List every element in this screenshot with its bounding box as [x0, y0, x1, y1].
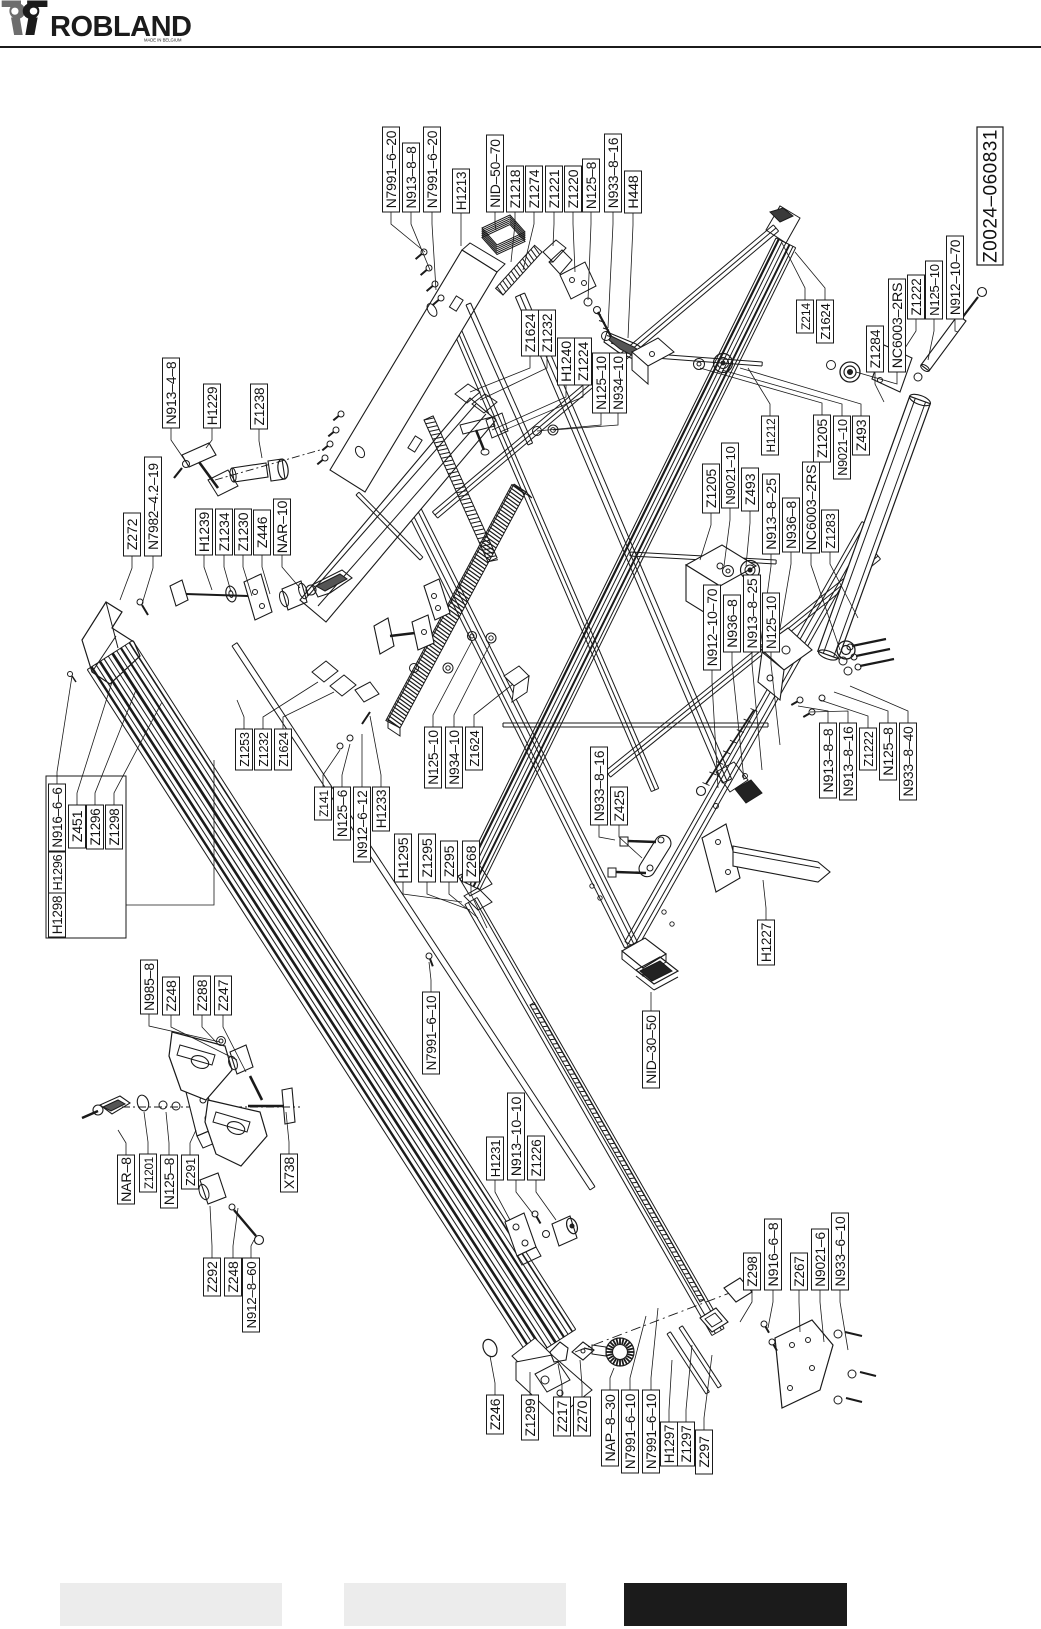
svg-text:N912–8–60: N912–8–60	[244, 1262, 259, 1329]
svg-text:N913–8–8: N913–8–8	[404, 146, 419, 209]
svg-text:Z1224: Z1224	[576, 342, 592, 382]
svg-text:Z1218: Z1218	[507, 169, 523, 208]
svg-text:N7991–6–10: N7991–6–10	[623, 1394, 638, 1469]
svg-text:Z1297: Z1297	[679, 1426, 694, 1463]
svg-text:Z1624: Z1624	[467, 730, 482, 766]
svg-text:N7982–4.2–19: N7982–4.2–19	[146, 463, 161, 550]
svg-text:H1227: H1227	[759, 923, 774, 962]
svg-text:N125–10: N125–10	[927, 264, 942, 316]
svg-text:Z1298: Z1298	[107, 809, 122, 846]
svg-text:Z1284: Z1284	[867, 329, 883, 368]
svg-text:Z493: Z493	[854, 419, 870, 451]
svg-text:H1297: H1297	[662, 1425, 677, 1463]
svg-text:Z1220: Z1220	[565, 169, 581, 208]
svg-text:Z141: Z141	[317, 790, 331, 817]
svg-text:Z246: Z246	[488, 1398, 504, 1430]
svg-text:H1239: H1239	[196, 511, 212, 552]
svg-text:Z1295: Z1295	[420, 838, 436, 878]
svg-text:N913–10–10: N913–10–10	[509, 1097, 525, 1177]
svg-text:Z288: Z288	[195, 979, 211, 1011]
svg-text:N9021–6: N9021–6	[813, 1232, 828, 1287]
svg-text:NID–30–50: NID–30–50	[643, 1015, 659, 1084]
svg-text:N913–4–8: N913–4–8	[163, 361, 179, 424]
svg-text:Z1232: Z1232	[539, 313, 555, 352]
svg-text:N912–10–70: N912–10–70	[704, 588, 720, 666]
svg-text:Z1222: Z1222	[861, 731, 876, 766]
svg-text:Z425: Z425	[611, 790, 627, 822]
svg-text:Z1221: Z1221	[546, 169, 562, 208]
svg-text:Z1238: Z1238	[252, 387, 267, 425]
svg-text:Z291: Z291	[184, 1158, 198, 1186]
svg-text:H1240: H1240	[559, 341, 575, 382]
svg-text:N7991–6–20: N7991–6–20	[424, 130, 440, 208]
svg-text:Z1226: Z1226	[529, 1140, 544, 1177]
svg-text:NC6003–2RS: NC6003–2RS	[804, 465, 820, 551]
svg-text:Z267: Z267	[792, 1256, 807, 1286]
svg-text:N125–8: N125–8	[584, 161, 599, 209]
svg-text:N936–8: N936–8	[783, 501, 799, 549]
svg-text:Z217: Z217	[555, 1400, 571, 1432]
svg-text:N125–8: N125–8	[881, 727, 897, 776]
svg-text:N125–6: N125–6	[335, 789, 350, 837]
svg-text:H1212: H1212	[764, 418, 778, 453]
svg-text:Z1205: Z1205	[815, 419, 831, 459]
svg-text:H1213: H1213	[454, 172, 469, 210]
svg-text:H1231: H1231	[488, 1140, 503, 1178]
svg-text:H1296: H1296	[51, 854, 65, 890]
svg-text:NC6003–2RS: NC6003–2RS	[890, 283, 906, 369]
svg-text:N9021–10: N9021–10	[836, 419, 850, 476]
svg-text:Z1296: Z1296	[88, 809, 103, 846]
svg-text:Z297: Z297	[697, 1436, 713, 1468]
svg-text:Z270: Z270	[575, 1400, 591, 1432]
svg-text:Z1624: Z1624	[522, 313, 538, 352]
svg-text:Z295: Z295	[442, 845, 458, 877]
svg-text:Z248: Z248	[225, 1261, 241, 1293]
svg-text:H1233: H1233	[374, 790, 389, 828]
svg-text:Z493: Z493	[743, 473, 759, 505]
svg-text:NAR–10: NAR–10	[275, 500, 291, 553]
svg-text:Z1299: Z1299	[523, 1399, 538, 1437]
svg-text:Z1222: Z1222	[909, 279, 924, 316]
svg-text:N913–8–25: N913–8–25	[744, 578, 760, 649]
svg-text:N916–6–8: N916–6–8	[766, 1222, 782, 1286]
svg-text:N985–8: N985–8	[141, 963, 157, 1011]
svg-text:NAP–8–30: NAP–8–30	[603, 1394, 619, 1461]
svg-text:Z247: Z247	[216, 979, 232, 1011]
svg-text:Z1253: Z1253	[238, 732, 252, 767]
svg-text:Z1624: Z1624	[277, 732, 291, 767]
svg-text:N125–10: N125–10	[594, 355, 609, 409]
svg-text:N912–10–70: N912–10–70	[948, 240, 963, 315]
svg-text:X738: X738	[281, 1157, 297, 1189]
svg-text:N933–8–16: N933–8–16	[591, 750, 607, 821]
svg-text:H448: H448	[626, 175, 642, 208]
svg-text:Z1205: Z1205	[704, 469, 720, 509]
svg-text:Z1230: Z1230	[235, 512, 251, 551]
svg-text:N936–8: N936–8	[725, 599, 741, 648]
svg-text:N934–10: N934–10	[611, 355, 626, 409]
svg-text:Z272: Z272	[125, 518, 141, 550]
svg-text:N125–10: N125–10	[426, 730, 441, 785]
svg-text:N913–8–25: N913–8–25	[764, 478, 780, 550]
svg-text:N933–8–16: N933–8–16	[605, 137, 621, 208]
svg-text:N916–6–6: N916–6–6	[50, 787, 65, 847]
svg-text:Z1234: Z1234	[216, 512, 232, 551]
svg-text:N125–8: N125–8	[162, 1157, 177, 1205]
svg-text:N933–8–40: N933–8–40	[900, 726, 916, 797]
svg-text:H1229: H1229	[205, 387, 220, 425]
svg-text:N7991–6–10: N7991–6–10	[424, 996, 439, 1071]
svg-text:Z1232: Z1232	[257, 732, 271, 767]
svg-text:H1295: H1295	[396, 837, 412, 878]
svg-text:NID–50–70: NID–50–70	[487, 139, 503, 208]
svg-text:Z298: Z298	[745, 1256, 760, 1287]
svg-text:N7991–6–10: N7991–6–10	[644, 1394, 659, 1469]
svg-text:N9021–10: N9021–10	[723, 446, 738, 504]
svg-text:H1298: H1298	[50, 896, 65, 934]
svg-text:Z1283: Z1283	[823, 513, 838, 548]
svg-text:N913–8–16: N913–8–16	[840, 726, 856, 797]
svg-text:Z0024–060831: Z0024–060831	[981, 129, 1002, 263]
svg-text:Z1624: Z1624	[818, 303, 833, 339]
svg-text:Z248: Z248	[163, 980, 179, 1012]
svg-text:Z292: Z292	[204, 1261, 220, 1293]
svg-text:N125–10: N125–10	[764, 596, 779, 649]
svg-text:N934–10: N934–10	[447, 730, 462, 785]
svg-text:Z451: Z451	[70, 810, 86, 842]
svg-text:N913–8–8: N913–8–8	[821, 728, 837, 792]
svg-text:N7991–6–20: N7991–6–20	[383, 130, 399, 208]
svg-text:N912–6–12: N912–6–12	[355, 790, 370, 858]
svg-text:Z1201: Z1201	[143, 1157, 156, 1189]
svg-text:Z214: Z214	[799, 303, 813, 330]
svg-text:NAR–8: NAR–8	[119, 1157, 135, 1202]
svg-text:N933–6–10: N933–6–10	[832, 1216, 848, 1287]
svg-text:Z1274: Z1274	[526, 169, 542, 208]
svg-text:Z268: Z268	[464, 845, 480, 877]
svg-text:Z446: Z446	[255, 516, 271, 548]
